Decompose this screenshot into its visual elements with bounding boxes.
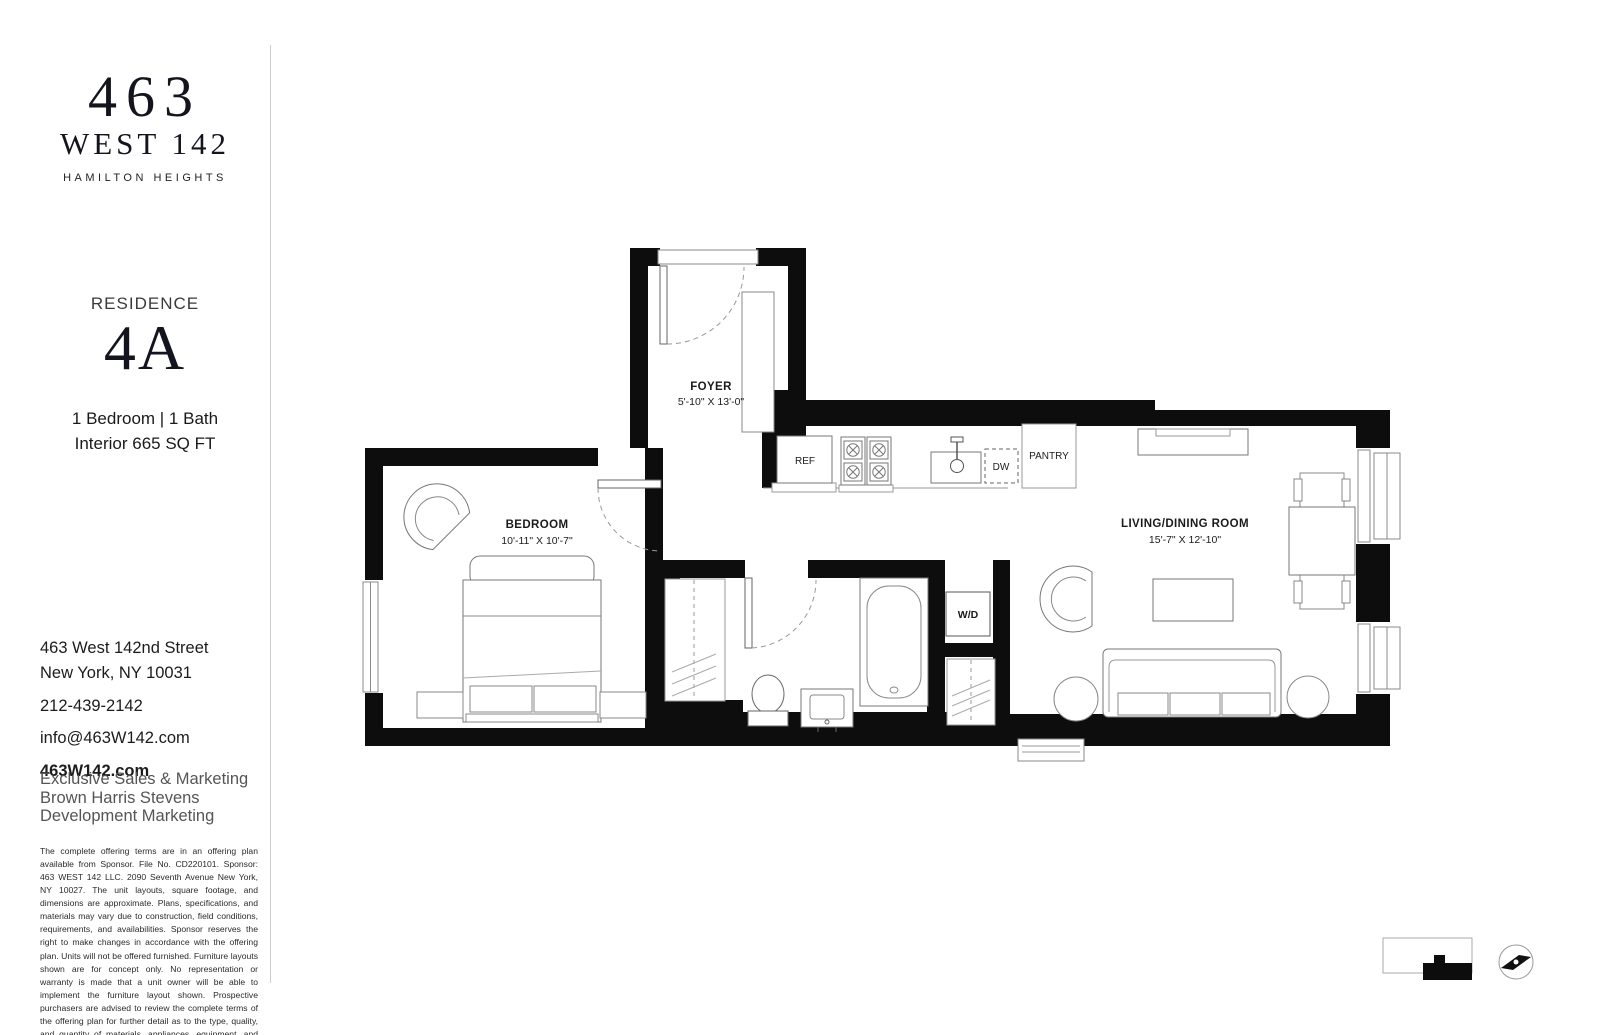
living-label: LIVING/DINING ROOM bbox=[1121, 518, 1249, 530]
key-plan bbox=[1383, 938, 1472, 980]
bedroom-dims: 10'-11" X 10'-7" bbox=[501, 535, 573, 547]
bathtub bbox=[860, 578, 928, 706]
bedroom-label: BEDROOM bbox=[506, 519, 569, 531]
bathroom-vanity bbox=[801, 689, 853, 732]
kitchen-sink bbox=[931, 437, 981, 483]
entry-opening bbox=[658, 250, 758, 264]
living-armchair bbox=[1040, 566, 1092, 632]
toilet bbox=[748, 675, 788, 726]
entry-door-swing bbox=[667, 267, 744, 344]
foyer-closet bbox=[742, 292, 774, 432]
nightstand-right bbox=[600, 692, 646, 718]
ref-label: REF bbox=[795, 456, 815, 467]
foyer-dims: 5'-10" X 13'-0" bbox=[678, 396, 745, 408]
bathroom-door-swing bbox=[752, 580, 816, 648]
coffee-table bbox=[1153, 579, 1233, 621]
side-table-left bbox=[1054, 677, 1098, 721]
pantry-label: PANTRY bbox=[1029, 451, 1069, 462]
linen-closet bbox=[947, 659, 995, 725]
bedroom-furniture bbox=[390, 470, 646, 722]
side-table-right bbox=[1287, 676, 1329, 718]
credenza bbox=[1138, 429, 1248, 455]
bed bbox=[463, 556, 601, 722]
wd-label: W/D bbox=[958, 609, 979, 621]
foyer-label: FOYER bbox=[690, 381, 732, 393]
radiator bbox=[1018, 739, 1084, 761]
floorplan-sheet: 463 WEST 142 HAMILTON HEIGHTS RESIDENCE … bbox=[0, 0, 1600, 1035]
nightstand-left bbox=[417, 692, 463, 718]
living-dims: 15'-7" X 12'-10" bbox=[1149, 534, 1221, 546]
bedroom-window bbox=[363, 582, 378, 692]
bathroom-door-leaf bbox=[745, 578, 752, 648]
dw-label: DW bbox=[993, 462, 1010, 473]
living-window-1 bbox=[1358, 450, 1400, 542]
hall-closet bbox=[665, 579, 725, 701]
dining-set bbox=[1289, 473, 1355, 609]
bedroom-armchair bbox=[390, 470, 474, 554]
living-window-2 bbox=[1358, 624, 1400, 692]
floor-plan-drawing: FOYER 5'-10" X 13'-0" BEDROOM 10'-11" X … bbox=[0, 0, 1600, 1035]
stove bbox=[839, 437, 893, 492]
compass-icon bbox=[1499, 945, 1533, 979]
bedroom-door-leaf bbox=[598, 480, 661, 488]
entry-door-leaf bbox=[660, 266, 667, 344]
sofa bbox=[1103, 649, 1281, 717]
